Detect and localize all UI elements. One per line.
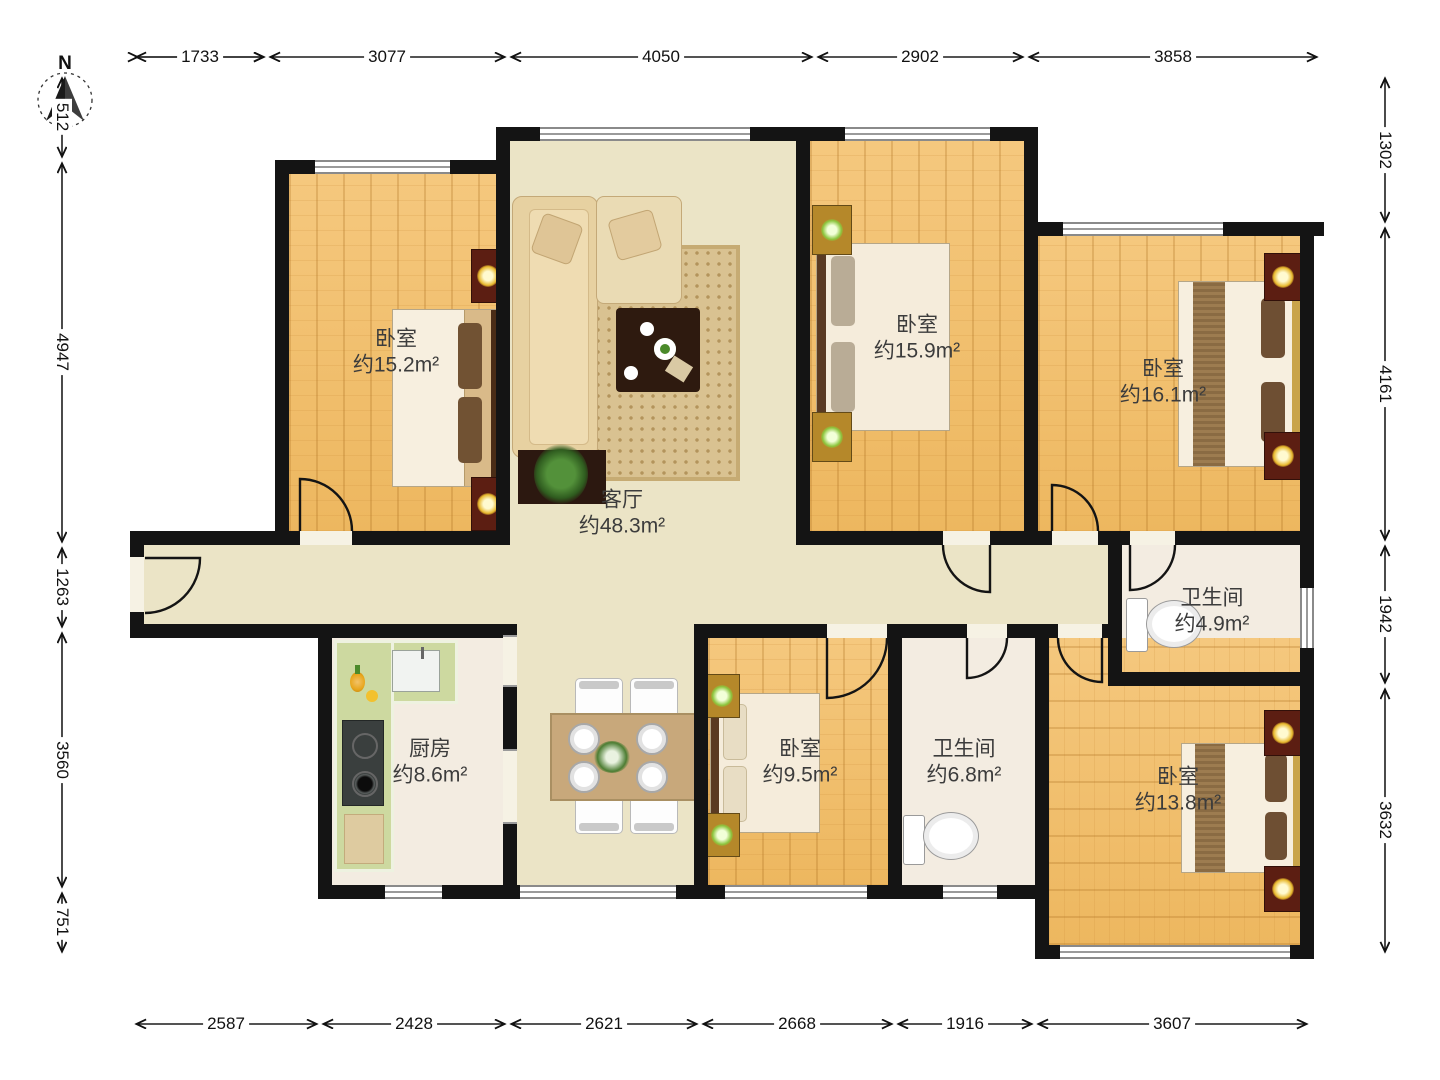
compass-n-label: N — [54, 53, 76, 75]
bedroom-bottom-middle-door-arc — [827, 638, 887, 698]
bedroom-bottom-right-door-arc — [1058, 638, 1102, 682]
room-area: 约15.9m² — [874, 338, 960, 364]
room-area: 约48.3m² — [579, 513, 665, 539]
room-label-living: 客厅 约48.3m² — [579, 487, 665, 538]
dim-top-2: 3077 — [364, 47, 410, 67]
entry-door-arc — [145, 558, 200, 613]
room-name: 卧室 — [763, 736, 838, 762]
room-area: 约4.9m² — [1175, 611, 1250, 637]
bathroom-bottom-door-arc — [967, 638, 1007, 678]
room-name: 卫生间 — [1175, 585, 1250, 611]
room-name: 卧室 — [353, 326, 439, 352]
dim-right-3: 1942 — [1375, 591, 1395, 637]
dim-right-4: 3632 — [1375, 797, 1395, 843]
dim-left-3: 1263 — [52, 564, 72, 610]
dim-right-1: 1302 — [1375, 127, 1395, 173]
room-name: 卧室 — [874, 312, 960, 338]
floor-plan: 卧室 约15.2m² 客厅 约48.3m² 卧室 约15.9m² 卧室 约16.… — [0, 0, 1440, 1080]
dim-bottom-4: 2668 — [774, 1014, 820, 1034]
plan-overlay — [0, 0, 1440, 1080]
dim-top-5: 3858 — [1150, 47, 1196, 67]
dim-left-5: 751 — [52, 904, 72, 940]
room-label-bedroom-top-left: 卧室 约15.2m² — [353, 326, 439, 377]
room-area: 约8.6m² — [393, 762, 468, 788]
room-area: 约16.1m² — [1120, 382, 1206, 408]
dim-bottom-3: 2621 — [581, 1014, 627, 1034]
bathroom-right-door-arc — [1130, 545, 1175, 590]
dim-top-4: 2902 — [897, 47, 943, 67]
bedroom-top-middle-door-arc — [943, 545, 990, 592]
room-area: 约6.8m² — [927, 762, 1002, 788]
dim-top-1: 1733 — [177, 47, 223, 67]
room-name: 客厅 — [579, 487, 665, 513]
dimension-lines — [62, 57, 1385, 1024]
dim-left-4: 3560 — [52, 737, 72, 783]
room-label-bathroom-bottom: 卫生间 约6.8m² — [927, 736, 1002, 787]
dim-bottom-2: 2428 — [391, 1014, 437, 1034]
dim-left-2: 4947 — [52, 329, 72, 375]
room-label-bedroom-bottom-middle: 卧室 约9.5m² — [763, 736, 838, 787]
room-label-bedroom-bottom-right: 卧室 约13.8m² — [1135, 764, 1221, 815]
bedroom-top-left-door-arc — [300, 479, 352, 531]
room-label-kitchen: 厨房 约8.6m² — [393, 736, 468, 787]
bedroom-top-right-door-arc — [1052, 485, 1098, 531]
room-area: 约13.8m² — [1135, 790, 1221, 816]
dim-bottom-1: 2587 — [203, 1014, 249, 1034]
room-label-bathroom-right: 卫生间 约4.9m² — [1175, 585, 1250, 636]
room-name: 卧室 — [1135, 764, 1221, 790]
room-name: 卧室 — [1120, 356, 1206, 382]
room-label-bedroom-top-right: 卧室 约16.1m² — [1120, 356, 1206, 407]
room-name: 厨房 — [393, 736, 468, 762]
room-name: 卫生间 — [927, 736, 1002, 762]
room-area: 约9.5m² — [763, 762, 838, 788]
dim-right-2: 4161 — [1375, 361, 1395, 407]
room-area: 约15.2m² — [353, 352, 439, 378]
dim-top-3: 4050 — [638, 47, 684, 67]
room-label-bedroom-top-middle: 卧室 约15.9m² — [874, 312, 960, 363]
dim-bottom-6: 3607 — [1149, 1014, 1195, 1034]
dim-left-1: 512 — [52, 99, 72, 135]
dim-bottom-5: 1916 — [942, 1014, 988, 1034]
